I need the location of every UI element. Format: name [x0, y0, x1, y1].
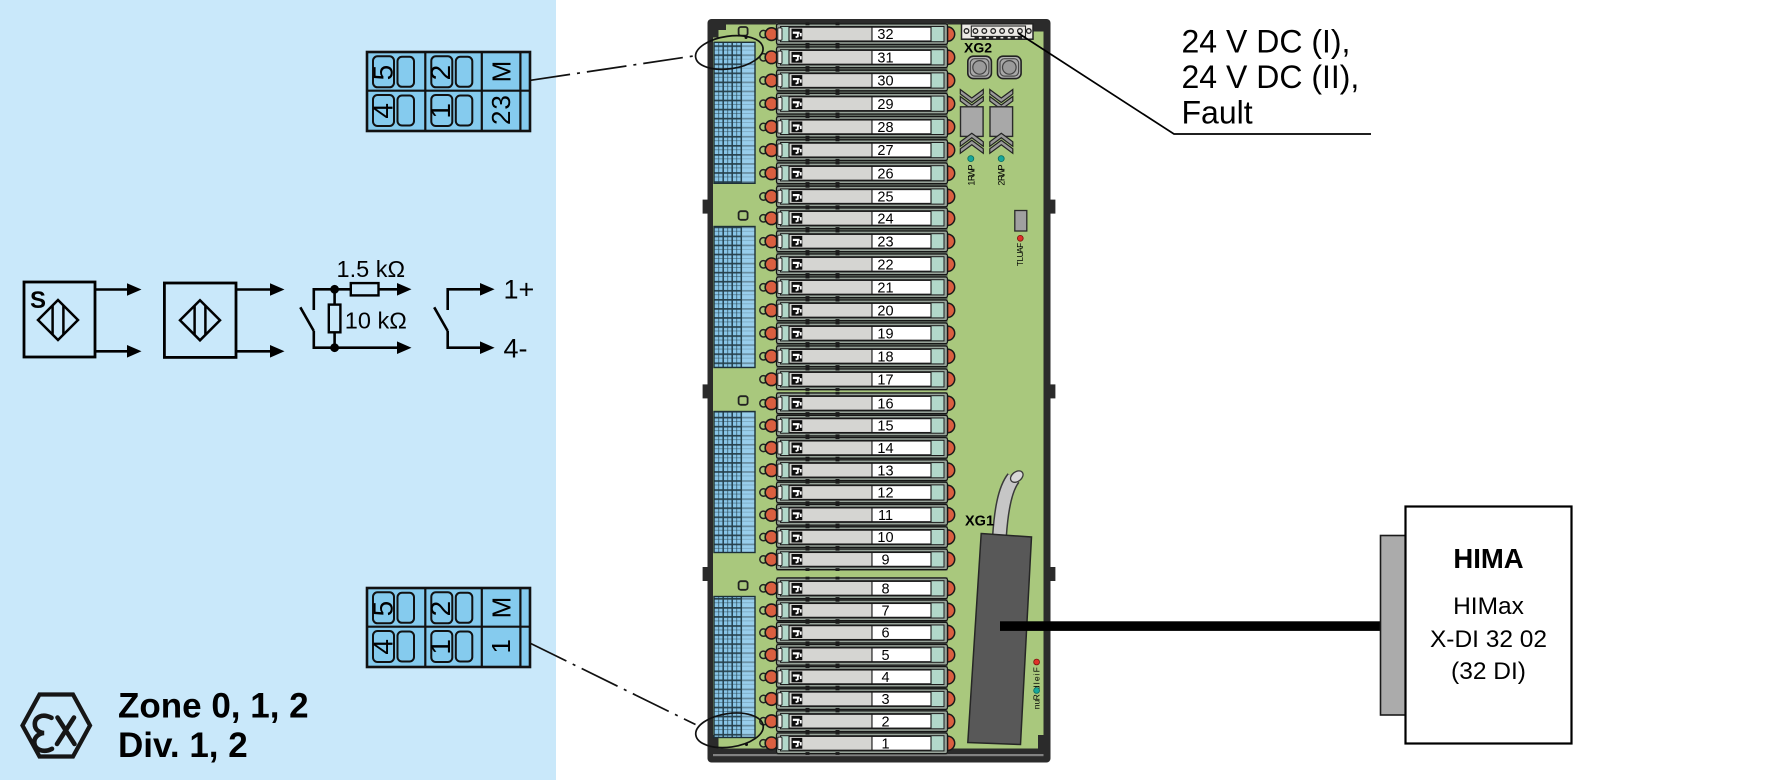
svg-text:2: 2	[996, 181, 1006, 186]
svg-text:28: 28	[877, 120, 893, 136]
svg-text:HIMA: HIMA	[1453, 543, 1523, 574]
svg-text:24: 24	[877, 211, 893, 227]
svg-text:1.5 kΩ: 1.5 kΩ	[337, 256, 406, 282]
svg-text:15: 15	[877, 419, 893, 435]
svg-text:(32 DI): (32 DI)	[1451, 658, 1526, 685]
svg-text:23: 23	[877, 234, 893, 250]
svg-text:5: 5	[368, 601, 399, 617]
svg-text:3: 3	[881, 692, 889, 708]
svg-text:XG1: XG1	[965, 514, 994, 530]
svg-text:5: 5	[368, 65, 399, 81]
svg-text:M: M	[487, 597, 517, 619]
svg-text:l: l	[1032, 682, 1042, 684]
svg-text:12: 12	[877, 486, 893, 502]
svg-text:F: F	[1032, 667, 1042, 672]
svg-text:2: 2	[881, 714, 889, 730]
svg-text:M: M	[487, 61, 517, 83]
svg-text:10: 10	[877, 530, 893, 546]
svg-text:4: 4	[368, 639, 399, 655]
svg-text:1+: 1+	[504, 275, 535, 305]
svg-text:11: 11	[878, 508, 893, 524]
svg-text:HIMax: HIMax	[1453, 593, 1524, 620]
svg-text:2: 2	[425, 601, 456, 617]
svg-text:21: 21	[877, 280, 893, 296]
svg-text:1: 1	[881, 736, 889, 752]
svg-text:1: 1	[967, 181, 977, 186]
svg-text:X-DI 32 02: X-DI 32 02	[1430, 626, 1547, 653]
svg-text:22: 22	[877, 257, 893, 273]
svg-text:T: T	[1016, 261, 1025, 266]
svg-text:6: 6	[881, 626, 889, 642]
svg-text:24 V DC (I),: 24 V DC (I),	[1182, 24, 1351, 60]
svg-text:u: u	[1032, 699, 1042, 704]
svg-text:24 V DC (II),: 24 V DC (II),	[1182, 59, 1360, 95]
svg-text:27: 27	[877, 143, 893, 159]
svg-text:U: U	[1016, 251, 1025, 257]
svg-text:1: 1	[425, 639, 456, 655]
svg-text:4: 4	[368, 103, 399, 119]
svg-text:13: 13	[877, 463, 893, 479]
svg-text:2: 2	[486, 111, 516, 125]
svg-text:16: 16	[877, 396, 893, 412]
svg-text:R: R	[967, 174, 977, 181]
svg-text:n: n	[1032, 704, 1042, 709]
svg-text:1: 1	[486, 639, 516, 653]
svg-text:e: e	[1032, 676, 1042, 681]
svg-text:8: 8	[881, 581, 889, 597]
svg-text:1: 1	[425, 103, 456, 119]
svg-text:2: 2	[425, 65, 456, 81]
svg-text:25: 25	[877, 190, 893, 206]
svg-text:26: 26	[877, 166, 893, 182]
svg-text:i: i	[1032, 673, 1042, 675]
svg-text:14: 14	[877, 441, 893, 457]
svg-text:30: 30	[877, 74, 893, 90]
svg-text:10 kΩ: 10 kΩ	[345, 307, 407, 333]
svg-text:S: S	[30, 287, 46, 314]
svg-text:9: 9	[881, 553, 889, 569]
svg-text:20: 20	[877, 303, 893, 319]
svg-text:Div. 1, 2: Div. 1, 2	[118, 726, 248, 765]
svg-text:Zone 0, 1, 2: Zone 0, 1, 2	[118, 687, 309, 726]
svg-text:29: 29	[877, 97, 893, 113]
svg-text:R: R	[1032, 694, 1042, 700]
svg-text:L: L	[1016, 256, 1025, 261]
svg-text:3: 3	[486, 95, 516, 109]
svg-text:F: F	[1016, 243, 1025, 248]
svg-text:7: 7	[881, 604, 889, 620]
svg-text:19: 19	[877, 326, 893, 342]
svg-text:17: 17	[877, 372, 893, 388]
svg-text:5: 5	[881, 648, 889, 664]
svg-text:R: R	[996, 174, 1006, 181]
svg-text:4: 4	[881, 670, 889, 686]
svg-text:XG2: XG2	[964, 40, 992, 56]
svg-text:32: 32	[877, 27, 893, 43]
svg-text:31: 31	[877, 50, 893, 66]
svg-text:Fault: Fault	[1182, 95, 1253, 131]
svg-text:18: 18	[877, 349, 893, 365]
svg-text:4-: 4-	[504, 334, 528, 364]
